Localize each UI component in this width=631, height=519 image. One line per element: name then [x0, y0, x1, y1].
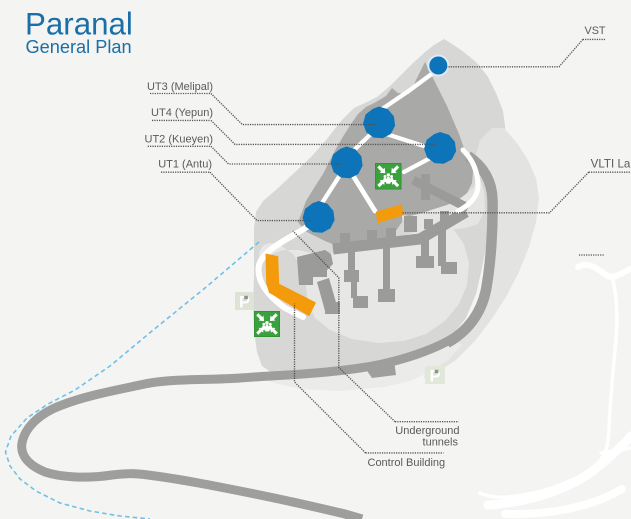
svg-text:VST: VST — [585, 25, 606, 37]
svg-text:Underground: Underground — [395, 425, 459, 437]
svg-text:UT2 (Kueyen): UT2 (Kueyen) — [145, 134, 213, 146]
svg-text:UT3 (Melipal): UT3 (Melipal) — [147, 81, 213, 93]
svg-text:UT4 (Yepun): UT4 (Yepun) — [151, 107, 213, 119]
svg-text:tunnels: tunnels — [423, 437, 459, 449]
svg-text:General Plan: General Plan — [26, 37, 132, 57]
svg-text:UT1 (Antu): UT1 (Antu) — [158, 159, 212, 171]
svg-text:VLTI Lab: VLTI Lab — [591, 158, 631, 171]
svg-text:Control Building: Control Building — [368, 457, 446, 469]
